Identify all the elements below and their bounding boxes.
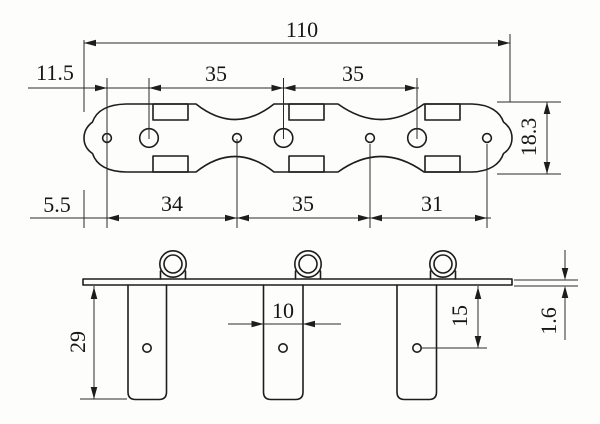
arrowhead — [84, 40, 96, 47]
drawing-sheet: 110 11.5 35 35 18.3 5.5 34 35 31 — [0, 0, 600, 424]
screw-hole-3 — [366, 134, 375, 143]
housing-hole-3 — [413, 344, 421, 352]
arrowhead — [562, 286, 569, 298]
dim-hole-offset: 15 — [447, 305, 472, 327]
housing-hole-2 — [279, 344, 287, 352]
dim-post-pitch-2: 35 — [342, 61, 364, 86]
dim-end-screw-offset: 5.5 — [43, 192, 71, 217]
arrowhead — [358, 215, 370, 222]
arrowhead — [91, 387, 98, 399]
arrowhead — [284, 85, 296, 92]
arrowhead — [91, 287, 98, 299]
edge-tab-cutout — [289, 156, 324, 172]
dim-plate-width: 18.3 — [516, 118, 541, 157]
screw-hole-4 — [483, 134, 492, 143]
arrowhead — [544, 102, 551, 114]
arrowhead — [95, 85, 107, 92]
bushing-2 — [295, 251, 321, 279]
bushing-inner — [299, 255, 317, 273]
arrowhead — [237, 215, 249, 222]
arrowhead — [475, 336, 482, 348]
bushing-3 — [430, 251, 456, 279]
housing-3 — [397, 285, 437, 400]
plate-outline — [84, 104, 512, 172]
arrowhead — [498, 40, 510, 47]
arrowhead — [475, 287, 482, 299]
dim-plate-thickness: 1.6 — [536, 307, 561, 335]
arrowhead — [303, 321, 315, 328]
bushing-1 — [160, 251, 186, 279]
dim-housing-width: 10 — [272, 298, 294, 323]
edge-tab-cutout — [425, 156, 460, 172]
side-view-dimensions: 29 10 15 1.6 — [65, 250, 578, 399]
dim-screw-pitch-2: 35 — [292, 191, 314, 216]
plate-edge-bar — [83, 279, 512, 285]
arrowhead — [272, 85, 284, 92]
top-view-plate — [84, 104, 512, 172]
arrowhead — [544, 162, 551, 174]
edge-tab-cutout — [153, 104, 188, 120]
edge-tab-cutout — [153, 156, 188, 172]
arrowhead — [107, 215, 119, 222]
dim-end-offset: 11.5 — [36, 60, 74, 85]
technical-drawing: 110 11.5 35 35 18.3 5.5 34 35 31 — [0, 0, 600, 424]
dim-screw-pitch-3: 31 — [421, 191, 443, 216]
arrowhead — [475, 215, 487, 222]
bushing-inner — [434, 255, 452, 273]
arrowhead — [562, 268, 569, 280]
arrowhead — [405, 85, 417, 92]
arrowhead — [252, 321, 264, 328]
housing-hole-1 — [143, 344, 151, 352]
dim-housing-length: 29 — [65, 331, 90, 353]
arrowhead — [149, 85, 161, 92]
dim-post-pitch-1: 35 — [205, 61, 227, 86]
arrowhead — [225, 215, 237, 222]
top-view-dimensions: 110 11.5 35 35 18.3 5.5 34 35 31 — [28, 17, 561, 228]
edge-tab-cutout — [425, 104, 460, 120]
arrowhead — [370, 215, 382, 222]
dim-overall-length: 110 — [286, 17, 318, 42]
housing-1 — [128, 285, 167, 400]
bushing-inner — [164, 255, 182, 273]
edge-tab-cutout — [289, 104, 324, 120]
dim-screw-pitch-1: 34 — [161, 191, 183, 216]
